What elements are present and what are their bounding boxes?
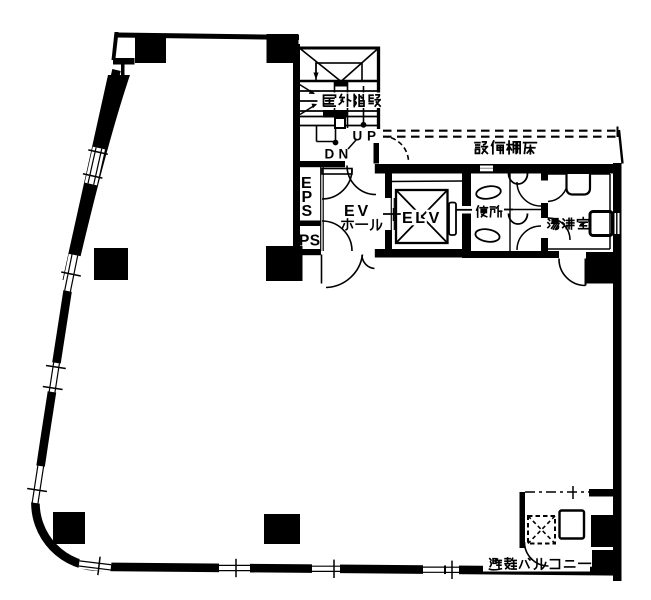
- svg-text:S: S: [302, 203, 313, 220]
- svg-text:L: L: [415, 210, 425, 227]
- svg-text:S: S: [310, 233, 320, 250]
- svg-text:E: E: [344, 203, 355, 220]
- svg-text:U: U: [353, 129, 363, 144]
- svg-text:D: D: [325, 147, 335, 162]
- svg-text:V: V: [358, 203, 369, 220]
- svg-text:V: V: [429, 210, 440, 227]
- svg-text:P: P: [367, 129, 376, 144]
- svg-text:E: E: [402, 210, 413, 227]
- svg-text:N: N: [339, 147, 349, 162]
- svg-text:P: P: [299, 233, 309, 250]
